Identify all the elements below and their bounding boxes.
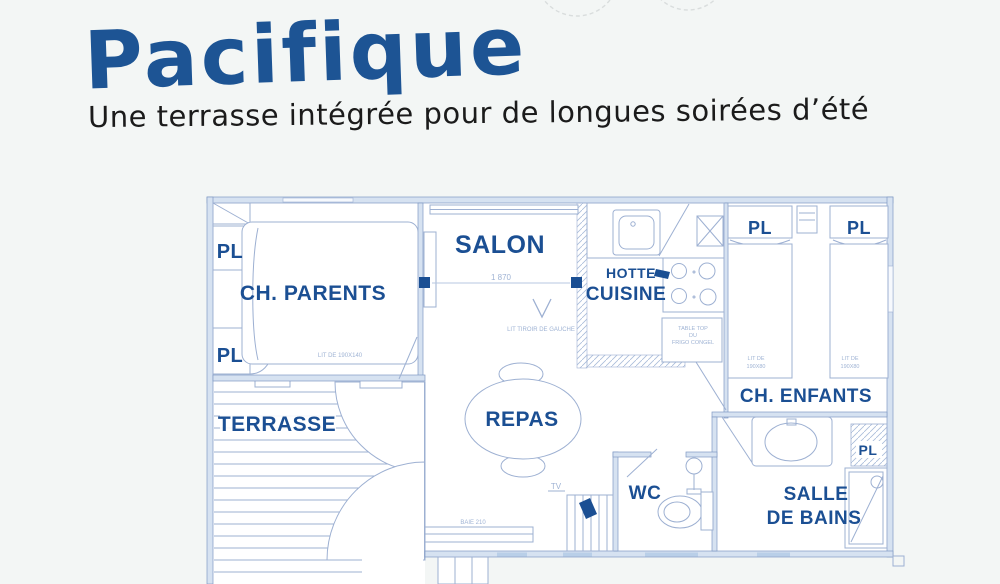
wall-wc-left — [613, 452, 618, 551]
wall-wc-top — [613, 452, 651, 457]
annotation-lit-tiroir: LIT TIROIR DE GAUCHE — [507, 327, 575, 333]
window-bottom — [497, 553, 527, 557]
label-pl-4: PL — [847, 218, 871, 238]
toilet-tank — [701, 492, 713, 530]
annotation-frigo: FRIGO CONGEL — [672, 340, 714, 346]
annotation-lit-enfant: 190X80 — [841, 364, 860, 370]
window-top — [283, 198, 353, 202]
label-ch-parents: CH. PARENTS — [240, 282, 386, 305]
label-repas: REPAS — [485, 408, 558, 431]
window-bottom — [757, 553, 790, 557]
label-cuisine: CUISINE — [586, 284, 667, 305]
label-salon: SALON — [455, 231, 545, 259]
label-pl-2: PL — [217, 345, 244, 367]
wall-parents-terrace — [213, 375, 425, 381]
steps — [438, 557, 488, 584]
wall-wc-sdb — [712, 417, 717, 551]
label-hotte: HOTTE — [606, 265, 656, 281]
page-header: Pacifique Une terrasse intégrée pour de … — [84, 2, 869, 130]
wall-enfants-left — [724, 203, 728, 418]
brand-title: Pacifique — [83, 0, 871, 108]
annotation-lit-parents: LIT DE 190X140 — [318, 353, 363, 359]
label-pl-3: PL — [748, 218, 772, 238]
bench-left — [424, 232, 436, 307]
sink — [613, 210, 660, 255]
label-salle: SALLE — [784, 484, 849, 505]
stove — [663, 258, 724, 312]
toilet — [658, 496, 702, 528]
annotation-baie: BAIE 210 — [460, 520, 486, 526]
wall-enfants-sdb — [712, 412, 887, 417]
bed-enfant-2 — [830, 244, 888, 378]
wall-parents-salon — [418, 203, 423, 377]
wall-left — [207, 197, 213, 584]
label-terrasse: TERRASSE — [218, 413, 336, 436]
label-de-bains: DE BAINS — [767, 508, 862, 529]
vanity — [752, 417, 832, 466]
annotation-lit-enfant: LIT DE — [747, 356, 764, 362]
annotation-tv: TV — [551, 482, 562, 491]
annotation-lit-enfant: LIT DE — [841, 356, 858, 362]
wall-wc-top — [686, 452, 717, 457]
label-wc: WC — [629, 483, 662, 504]
label-ch-enfants: CH. ENFANTS — [740, 386, 872, 407]
brand-subtitle: Une terrasse intégrée pour de longues so… — [88, 92, 869, 134]
window-bottom — [563, 553, 592, 557]
annotation-lit-enfant: 190X80 — [747, 364, 766, 370]
label-pl-5: PL — [859, 442, 878, 458]
annotation-frigo: DU — [689, 333, 697, 339]
annotation-dimension: 1 870 — [491, 273, 512, 282]
annotation-frigo: TABLE TOP — [678, 326, 708, 332]
window-bottom — [645, 553, 698, 557]
label-pl-1: PL — [217, 241, 244, 263]
exterior-box — [893, 556, 904, 566]
